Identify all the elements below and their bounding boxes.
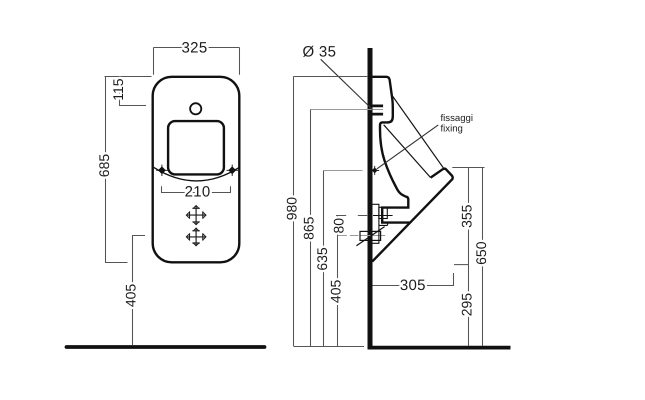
- svg-text:650: 650: [473, 241, 489, 265]
- svg-text:210: 210: [185, 184, 211, 201]
- svg-text:Ø 35: Ø 35: [303, 44, 337, 61]
- svg-text:980: 980: [284, 197, 300, 221]
- svg-text:405: 405: [327, 280, 343, 304]
- svg-text:295: 295: [459, 293, 475, 317]
- svg-text:865: 865: [301, 216, 317, 240]
- svg-text:115: 115: [110, 78, 126, 101]
- svg-text:80: 80: [331, 218, 347, 234]
- svg-text:685: 685: [96, 154, 112, 178]
- svg-text:355: 355: [459, 204, 475, 228]
- svg-text:405: 405: [123, 284, 139, 308]
- svg-text:325: 325: [182, 40, 208, 57]
- svg-text:fixing: fixing: [441, 124, 463, 135]
- svg-text:635: 635: [314, 247, 330, 271]
- svg-text:305: 305: [400, 277, 426, 294]
